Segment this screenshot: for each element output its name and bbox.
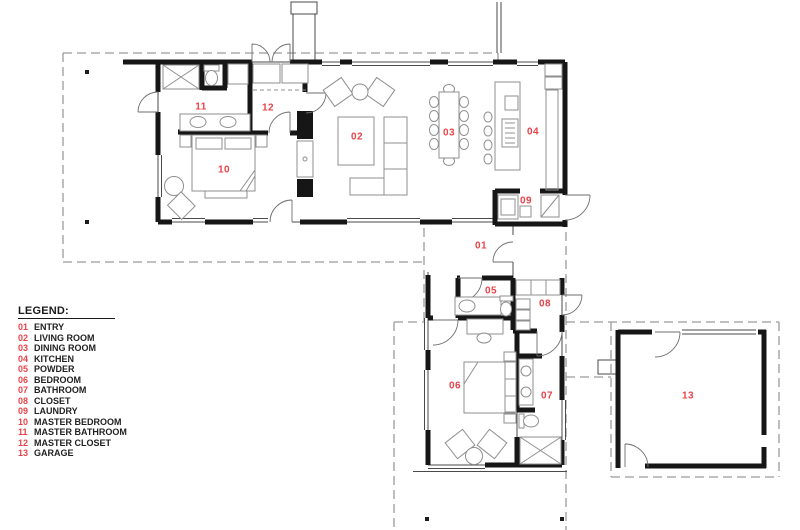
dining-chair-icon: [430, 125, 439, 136]
legend-item: 08CLOSET: [18, 396, 148, 407]
legend-item-num: 13: [18, 448, 34, 459]
room-label-master-closet: 12: [262, 103, 274, 114]
living-room-furniture: [323, 77, 407, 195]
legend-item: 04KITCHEN: [18, 354, 148, 365]
room-label-master-bathroom: 11: [195, 102, 207, 113]
fridge-icon: [545, 77, 562, 89]
dining-chair-icon: [430, 111, 439, 122]
bench-icon: [205, 191, 247, 198]
room-label-powder: 05: [485, 286, 497, 297]
legend-item: 09LAUNDRY: [18, 406, 148, 417]
sofa-icon: [384, 117, 407, 195]
room-label-entry: 01: [475, 241, 487, 252]
toilet-icon: [524, 415, 539, 427]
toilet-tank-icon: [500, 296, 513, 301]
legend-item: 12MASTER CLOSET: [18, 438, 148, 449]
kitchen-island: [495, 82, 520, 170]
legend-item-name: BATHROOM: [34, 385, 86, 395]
roof-overhang-lines: [63, 53, 779, 530]
side-table-icon: [466, 448, 483, 465]
room-label-living-room: 02: [351, 132, 363, 143]
master-closet-builtins: [253, 64, 308, 90]
legend-item: 02LIVING ROOM: [18, 333, 148, 344]
shelf-icon: [516, 321, 530, 330]
legend-item-name: BEDROOM: [34, 375, 81, 385]
dining-table-icon: [439, 92, 459, 158]
room-label-garage: 13: [682, 391, 694, 402]
floor-plan-page: 01 02 03 04 05 06 07 08 09 10 11 12 13 L…: [0, 0, 800, 530]
doors: [138, 44, 680, 467]
legend-item-name: DINING ROOM: [34, 343, 96, 353]
legend-item-name: CLOSET: [34, 396, 71, 406]
nightstand-icon: [504, 352, 516, 361]
room-label-closet: 08: [539, 299, 551, 310]
wardrobe-icon: [505, 362, 516, 412]
legend-item: 05POWDER: [18, 364, 148, 375]
kitchen-fixtures: [484, 64, 562, 190]
room-label-bathroom: 07: [541, 391, 553, 402]
cabinet-icon: [228, 64, 248, 84]
nightstand-icon: [180, 135, 191, 147]
room-label-dining-room: 03: [443, 128, 455, 139]
legend-item-name: GARAGE: [34, 448, 74, 458]
shelf-icon: [520, 206, 531, 217]
legend-item-num: 05: [18, 364, 34, 375]
legend-item-num: 07: [18, 385, 34, 396]
stool-icon: [484, 140, 492, 150]
bedroom-furniture: [445, 319, 516, 465]
powder-fixtures: [455, 296, 513, 316]
room-label-kitchen: 04: [527, 127, 539, 138]
shelf-icon: [516, 310, 530, 320]
legend-item-num: 08: [18, 396, 34, 407]
legend-item-name: KITCHEN: [34, 354, 74, 364]
dining-chair-icon: [460, 125, 469, 136]
legend: LEGEND: 01ENTRY 02LIVING ROOM 03DINING R…: [18, 305, 148, 459]
chair-icon: [168, 192, 196, 220]
fridge-icon: [545, 64, 562, 76]
stool-icon: [484, 112, 492, 122]
legend-item: 07BATHROOM: [18, 385, 148, 396]
legend-item: 11MASTER BATHROOM: [18, 427, 148, 438]
armchair-icon: [365, 77, 394, 106]
toilet-icon: [206, 71, 218, 86]
legend-item-num: 03: [18, 343, 34, 354]
legend-item-name: ENTRY: [34, 322, 64, 332]
legend-item: 10MASTER BEDROOM: [18, 417, 148, 428]
legend-item: 01ENTRY: [18, 322, 148, 333]
legend-item-num: 10: [18, 417, 34, 428]
legend-item-num: 01: [18, 322, 34, 333]
coffee-table-icon: [352, 84, 368, 100]
fireplace: [297, 111, 313, 197]
sofa-chaise-icon: [350, 178, 384, 195]
shelf-icon: [516, 280, 560, 295]
kitchen-counter: [546, 90, 558, 190]
stool-icon: [484, 126, 492, 136]
legend-item-num: 12: [18, 438, 34, 449]
room-label-laundry: 09: [520, 196, 532, 207]
dining-chair-icon: [460, 97, 469, 108]
nightstand-icon: [504, 414, 516, 423]
desk-icon: [467, 319, 503, 334]
legend-item: 06BEDROOM: [18, 375, 148, 386]
room-label-master-bedroom: 10: [218, 165, 230, 176]
shelf-icon: [516, 299, 530, 309]
room-label-bedroom: 06: [449, 381, 461, 392]
desk-chair-icon: [477, 333, 491, 343]
legend-item-name: LIVING ROOM: [34, 333, 95, 343]
nightstand-icon: [256, 135, 267, 147]
legend-item-name: POWDER: [34, 364, 75, 374]
legend-item-num: 09: [18, 406, 34, 417]
stool-icon: [484, 154, 492, 164]
toilet-icon: [501, 302, 512, 316]
legend-item-name: MASTER BEDROOM: [34, 417, 122, 427]
armchair-icon: [323, 77, 352, 106]
dining-chair-icon: [460, 111, 469, 122]
legend-item-name: LAUNDRY: [34, 406, 78, 416]
vanity-counter: [455, 297, 501, 315]
legend-item-name: MASTER BATHROOM: [34, 427, 127, 437]
legend-item-num: 02: [18, 333, 34, 344]
dining-chair-icon: [430, 139, 439, 150]
legend-item-num: 04: [18, 354, 34, 365]
legend-item: 13GARAGE: [18, 448, 148, 459]
legend-item-num: 11: [18, 427, 34, 438]
legend-item: 03DINING ROOM: [18, 343, 148, 354]
dining-chair-icon: [430, 97, 439, 108]
legend-item-name: MASTER CLOSET: [34, 438, 111, 448]
master-bedroom-furniture: [165, 135, 268, 219]
dining-room-furniture: [430, 85, 469, 166]
master-bathroom-fixtures: [163, 64, 250, 131]
legend-title: LEGEND:: [18, 305, 115, 319]
legend-item-num: 06: [18, 375, 34, 386]
dining-chair-icon: [460, 139, 469, 150]
